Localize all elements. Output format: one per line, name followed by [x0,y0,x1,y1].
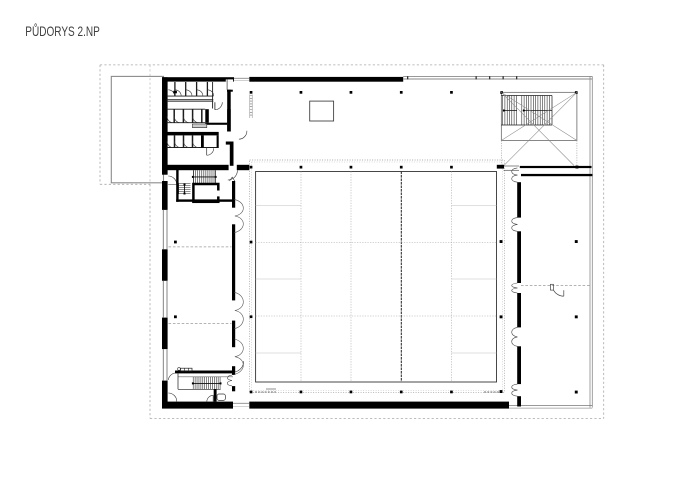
svg-text:PŮDORYS 2.NP: PŮDORYS 2.NP [25,22,100,39]
